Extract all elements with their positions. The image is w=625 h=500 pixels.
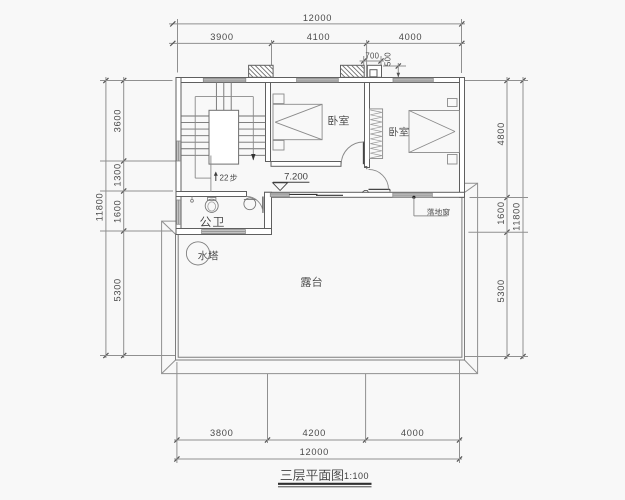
svg-text:4800: 4800: [496, 122, 506, 145]
svg-text:4000: 4000: [401, 428, 424, 438]
svg-text:3800: 3800: [210, 428, 233, 438]
svg-text:700: 700: [365, 52, 379, 61]
svg-text:1600: 1600: [496, 201, 506, 224]
svg-text:4200: 4200: [303, 428, 326, 438]
svg-text:1300: 1300: [113, 163, 123, 186]
svg-text:1600: 1600: [113, 200, 123, 223]
svg-text:3600: 3600: [113, 109, 123, 132]
svg-text:12000: 12000: [300, 447, 329, 457]
svg-text:3900: 3900: [210, 32, 233, 42]
svg-text:4100: 4100: [307, 32, 330, 42]
svg-text:12000: 12000: [303, 13, 332, 23]
svg-text:500: 500: [384, 52, 393, 66]
svg-text:1:100: 1:100: [344, 471, 369, 481]
svg-text:11800: 11800: [95, 193, 105, 222]
svg-text:4000: 4000: [399, 32, 422, 42]
svg-text:5300: 5300: [113, 278, 123, 301]
svg-text:22: 22: [220, 174, 229, 183]
svg-text:7.200: 7.200: [284, 172, 308, 183]
svg-text:5300: 5300: [496, 279, 506, 302]
svg-text:11800: 11800: [512, 202, 522, 231]
